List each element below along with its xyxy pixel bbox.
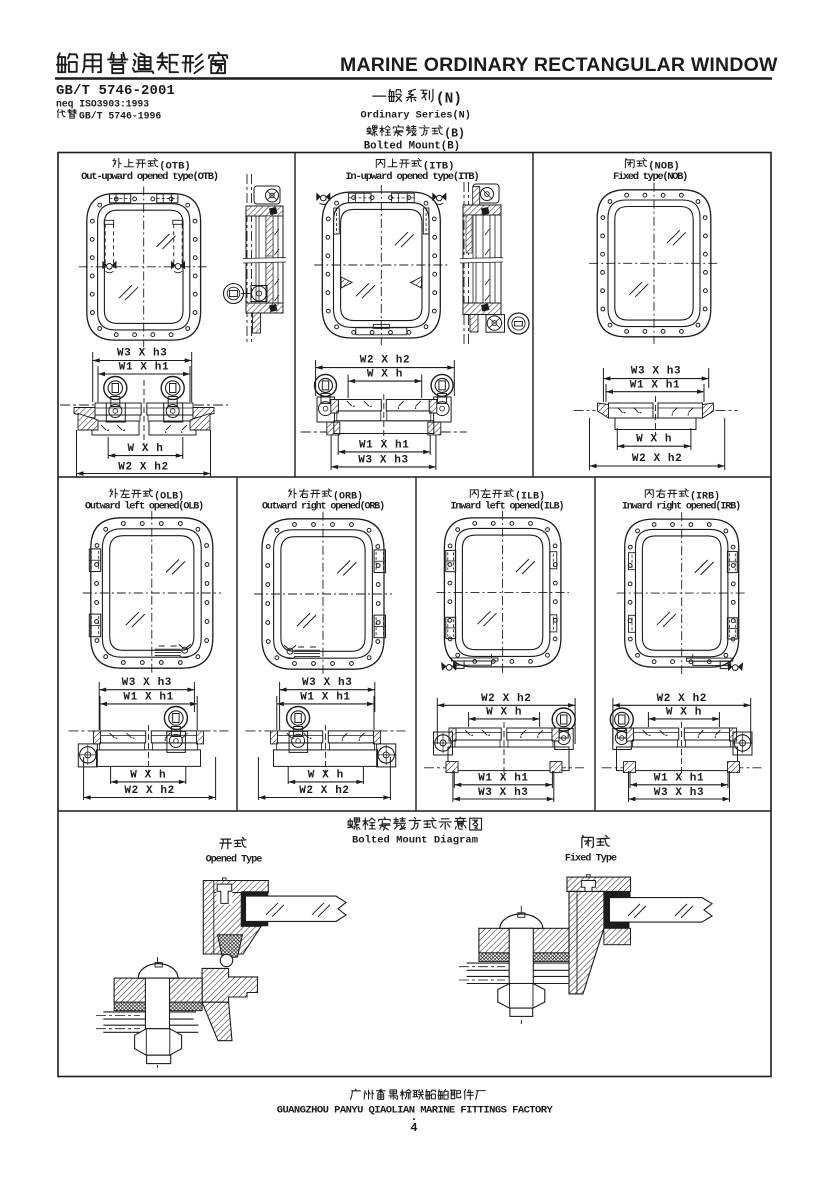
svg-text:Fixed type(NOB): Fixed type(NOB) xyxy=(613,171,687,183)
svg-text:W2 X h2: W2 X h2 xyxy=(360,355,410,367)
svg-text:Inward left opened(ILB): Inward left opened(ILB) xyxy=(451,501,564,513)
svg-text:W2 X h2: W2 X h2 xyxy=(299,785,349,797)
svg-text:W1 X h1: W1 X h1 xyxy=(123,692,173,704)
svg-text:W3 X h3: W3 X h3 xyxy=(478,787,528,799)
svg-text:Ordinary Series(N): Ordinary Series(N) xyxy=(360,110,470,122)
svg-text:Inward right opened(IRB): Inward right opened(IRB) xyxy=(622,501,740,513)
svg-text:W2 X h2: W2 X h2 xyxy=(124,785,174,797)
svg-text:Outward left opened(OLB): Outward left opened(OLB) xyxy=(85,501,203,513)
svg-text:W2 X h2: W2 X h2 xyxy=(118,462,168,474)
svg-text:W3 X h3: W3 X h3 xyxy=(122,677,172,689)
svg-text:Out-upward opened type(OTB): Out-upward opened type(OTB) xyxy=(81,171,218,183)
svg-text:W2 X h2: W2 X h2 xyxy=(657,693,707,705)
svg-text:W3 X h3: W3 X h3 xyxy=(654,787,704,799)
svg-text:W X h: W X h xyxy=(666,707,702,719)
svg-text:Bolted Mount(B): Bolted Mount(B) xyxy=(364,141,460,153)
svg-text:MARINE ORDINARY RECTANGULAR WI: MARINE ORDINARY RECTANGULAR WINDOW xyxy=(340,54,778,76)
svg-text:W X h: W X h xyxy=(130,770,166,782)
svg-text:neq ISO3903:1993: neq ISO3903:1993 xyxy=(56,99,149,110)
svg-text:Opened Type: Opened Type xyxy=(206,854,263,866)
svg-text:W1 X h1: W1 X h1 xyxy=(119,362,169,374)
svg-text:Outward right opened(ORB): Outward right opened(ORB) xyxy=(262,501,384,513)
svg-text:W1 X h1: W1 X h1 xyxy=(654,773,704,785)
svg-text:(N): (N) xyxy=(436,92,462,108)
svg-text:W X h: W X h xyxy=(486,707,522,719)
svg-text:W2 X h2: W2 X h2 xyxy=(632,453,682,465)
svg-text:W1 X h1: W1 X h1 xyxy=(478,773,528,785)
svg-text:W1 X h1: W1 X h1 xyxy=(630,380,680,392)
svg-text:4: 4 xyxy=(410,1121,417,1135)
svg-text:Fixed Type: Fixed Type xyxy=(565,853,617,865)
svg-text:W3 X h3: W3 X h3 xyxy=(302,677,352,689)
svg-text:W X h: W X h xyxy=(636,434,672,446)
svg-text:W3 X h3: W3 X h3 xyxy=(358,455,408,467)
svg-text:In-upward opened type(ITB): In-upward opened type(ITB) xyxy=(345,171,478,183)
svg-text:W X h: W X h xyxy=(367,369,403,381)
svg-text:W3 X h3: W3 X h3 xyxy=(631,366,681,378)
svg-text:W2 X h2: W2 X h2 xyxy=(481,693,531,705)
svg-text:GB/T 5746-1996: GB/T 5746-1996 xyxy=(79,111,161,122)
svg-text:W3 X h3: W3 X h3 xyxy=(117,348,167,360)
svg-text:W1 X h1: W1 X h1 xyxy=(300,692,350,704)
svg-text:W1 X h1: W1 X h1 xyxy=(359,440,409,452)
svg-text:(B): (B) xyxy=(444,128,465,141)
svg-text:W X h: W X h xyxy=(308,770,344,782)
svg-text:GB/T 5746-2001: GB/T 5746-2001 xyxy=(56,83,175,99)
svg-text:Bolted Mount Diagram: Bolted Mount Diagram xyxy=(352,835,478,847)
svg-text:W X h: W X h xyxy=(127,443,163,455)
